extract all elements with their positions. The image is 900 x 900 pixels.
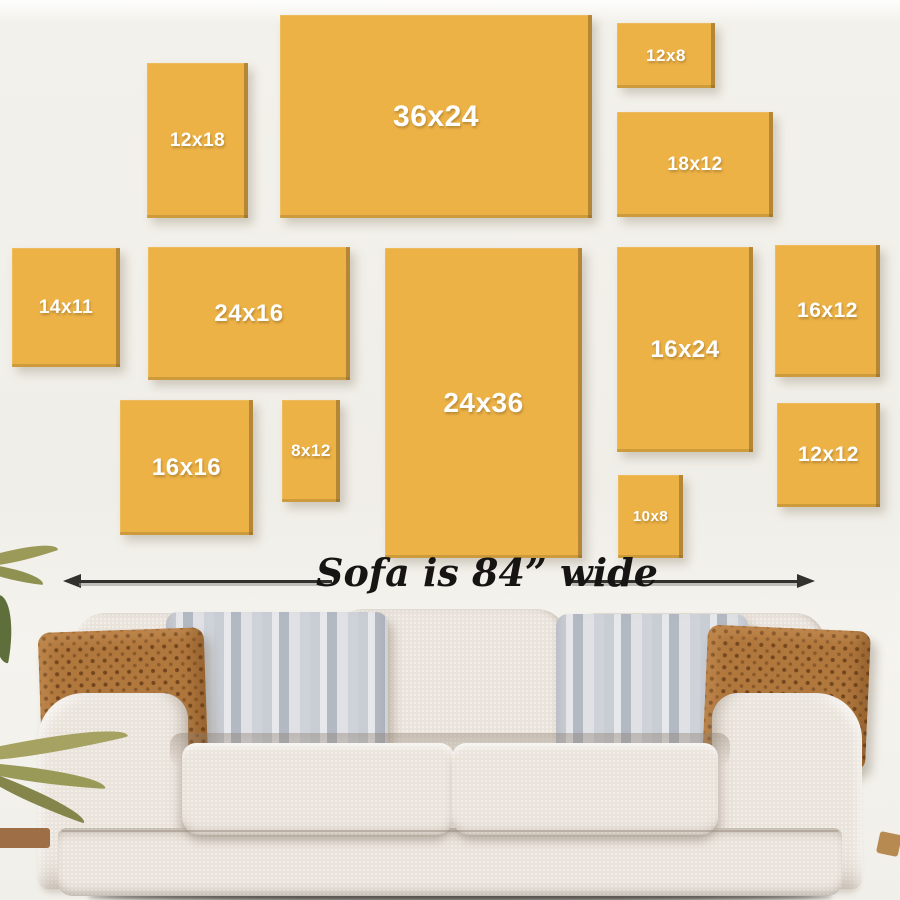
- frame-size-label: 10x8: [633, 508, 668, 525]
- arrow-right-icon: [797, 574, 815, 588]
- sofa-seat-cushion-right: [452, 743, 718, 835]
- sofa-seat-cushion-left: [182, 743, 454, 835]
- frame-16x12: 16x12: [775, 245, 880, 377]
- frame-size-label: 36x24: [393, 100, 479, 134]
- frame-size-label: 12x18: [170, 130, 225, 152]
- frame-size-label: 8x12: [291, 441, 331, 461]
- frame-24x36: 24x36: [385, 248, 582, 558]
- sofa-leg-right: [876, 831, 900, 857]
- frame-12x8: 12x8: [617, 23, 715, 88]
- plant-leaf: [0, 595, 20, 664]
- side-table-edge: [0, 828, 50, 848]
- sofa-width-caption: Sofa is 84” wide: [316, 550, 592, 595]
- arrow-line-left: [79, 580, 332, 583]
- sofa-base-seam: [62, 830, 838, 832]
- frame-size-label: 14x11: [39, 297, 93, 319]
- frame-size-label: 16x16: [152, 454, 221, 482]
- frame-size-label: 24x16: [214, 300, 283, 328]
- frame-size-label: 12x12: [798, 443, 859, 467]
- plant-leaf: [0, 563, 45, 585]
- frame-12x12: 12x12: [777, 403, 880, 507]
- frame-18x12: 18x12: [617, 112, 773, 217]
- frame-14x11: 14x11: [12, 248, 120, 367]
- wall-background: 12x18 36x24 12x8 18x12 14x11 24x16 24x36…: [0, 0, 900, 900]
- frame-size-label: 16x24: [650, 336, 719, 364]
- sofa-base: [58, 828, 842, 896]
- frame-10x8: 10x8: [618, 475, 683, 558]
- frame-36x24: 36x24: [280, 15, 592, 218]
- frame-24x16: 24x16: [148, 247, 350, 380]
- frame-size-label: 24x36: [443, 387, 523, 419]
- frame-size-label: 16x12: [797, 299, 858, 323]
- frame-size-label: 18x12: [667, 154, 722, 176]
- frame-16x16: 16x16: [120, 400, 253, 535]
- frame-size-label: 12x8: [646, 46, 686, 66]
- frame-16x24: 16x24: [617, 247, 753, 452]
- frame-8x12: 8x12: [282, 400, 340, 502]
- frame-12x18: 12x18: [147, 63, 248, 218]
